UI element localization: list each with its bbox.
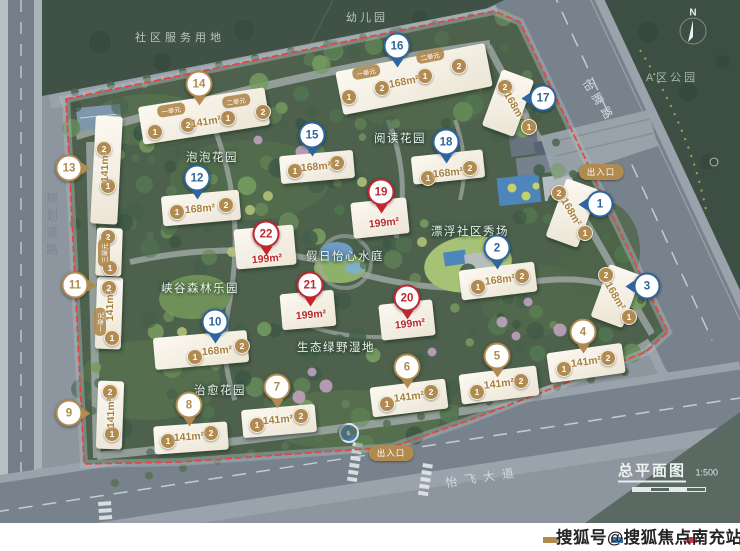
unit-number-badge: 1: [470, 279, 486, 295]
building-marker-6[interactable]: 6: [394, 354, 421, 381]
label-kindergarten: 幼儿园: [346, 9, 388, 25]
garden-label: 泡泡花园: [186, 149, 238, 165]
unit-number-badge: 2: [203, 425, 219, 441]
building-number: 13: [63, 162, 76, 174]
building-marker-15[interactable]: 15: [299, 122, 326, 149]
marker-pin-tail: [577, 345, 589, 354]
building-number: 17: [537, 92, 550, 104]
garden-label: 假日怡心水庭: [306, 248, 384, 264]
building-number: 5: [494, 350, 500, 362]
garden-label: 生态绿野湿地: [297, 339, 375, 355]
unit-number-badge: 1: [379, 396, 395, 412]
building-marker-22[interactable]: 22: [253, 221, 280, 248]
building-marker-2[interactable]: 2: [484, 235, 511, 262]
marker-pin-tail: [183, 418, 195, 427]
building-number: 11: [69, 279, 81, 291]
building-number: 8: [186, 399, 192, 411]
marker-pin-tail: [401, 311, 413, 320]
entrance-badge: 出入口: [369, 445, 414, 461]
building-marker-21[interactable]: 21: [297, 272, 324, 299]
unit-number-badge: 2: [451, 58, 467, 74]
unit-number-badge: 1: [169, 204, 185, 220]
building-marker-16[interactable]: 16: [384, 33, 411, 60]
building-marker-14[interactable]: 14: [186, 71, 213, 98]
building-marker-5[interactable]: 5: [484, 343, 511, 370]
building-number: 7: [274, 381, 280, 393]
building-number: 22: [260, 228, 273, 240]
marker-pin-tail: [271, 400, 283, 409]
building-number: 4: [580, 326, 586, 338]
building-number: 10: [209, 316, 222, 328]
building-marker-8[interactable]: 8: [176, 392, 203, 419]
marker-pin-tail: [191, 191, 203, 200]
building-number: 6: [404, 361, 410, 373]
marker-pin-tail: [491, 261, 503, 270]
building-marker-4[interactable]: 4: [570, 319, 597, 346]
marker-pin-tail: [260, 247, 272, 256]
building-area-label: 141m²: [99, 152, 111, 182]
building-marker-19[interactable]: 19: [368, 179, 395, 206]
building-number: 12: [191, 172, 204, 184]
unit-number-badge: 1: [187, 349, 203, 365]
marker-pin-tail: [209, 335, 221, 344]
building-number: 20: [401, 292, 414, 304]
unit-number-badge: 2: [218, 197, 234, 213]
watermark: 搜狐号@搜狐焦点南充站: [556, 524, 740, 548]
building-marker-13[interactable]: 13: [56, 155, 83, 182]
marker-pin-tail: [522, 92, 531, 104]
marker-pin-tail: [304, 298, 316, 307]
building-number: 21: [304, 279, 317, 291]
unit-number-badge: 2: [513, 373, 529, 389]
building-area-label: 141m²: [104, 291, 116, 321]
unit-number-badge: 1: [104, 426, 120, 442]
building-marker-9[interactable]: 9: [56, 400, 83, 427]
label-road-east: 怡腾路: [579, 76, 619, 126]
marker-pin-tail: [579, 198, 588, 210]
building-number: 9: [66, 407, 72, 419]
garden-label: 峡谷森林乐园: [161, 280, 239, 296]
unit-number-badge: 2: [514, 268, 530, 284]
building-number: 3: [644, 280, 650, 292]
scale-bar: [632, 487, 706, 492]
building-number: 14: [193, 78, 206, 90]
marker-pin-tail: [626, 280, 635, 292]
unit-number-badge: 1: [469, 384, 485, 400]
unit-number-badge: 1: [341, 89, 357, 105]
building-marker-3[interactable]: 3: [634, 273, 661, 300]
building-area-label: 141m²: [173, 430, 204, 444]
unit-number-badge: 1: [104, 330, 120, 346]
marker-pin-tail: [440, 155, 452, 164]
marker-pin-tail: [375, 205, 387, 214]
building-marker-12[interactable]: 12: [184, 165, 211, 192]
building-number: 15: [306, 129, 319, 141]
marker-pin-tail: [193, 97, 205, 106]
garden-label: 阅读花园: [374, 130, 426, 146]
unit-number-badge: 1: [521, 119, 537, 135]
building-number: 16: [391, 40, 404, 52]
plan-scale: 1:500: [695, 468, 718, 478]
building-number: 19: [375, 186, 388, 198]
unit-number-badge: 2: [423, 384, 439, 400]
unit-number-badge: 1: [577, 225, 593, 241]
unit-number-badge: 2: [600, 350, 616, 366]
building-number: 18: [440, 136, 453, 148]
building-number: 2: [494, 242, 500, 254]
marker-pin-tail: [82, 407, 91, 419]
plan-title: 总平面图: [618, 463, 686, 483]
label-road-west: 规划道路: [44, 192, 61, 260]
unit-number-badge: 2: [255, 104, 271, 120]
unit-number-badge: 2: [234, 338, 250, 354]
marker-pin-tail: [391, 59, 403, 68]
unit-number-badge: 1: [147, 124, 163, 140]
marker-pin-tail: [306, 148, 318, 157]
label-community-service-land: 社区服务用地: [135, 29, 225, 45]
unit-number-badge: 2: [462, 160, 478, 176]
marker-pin-tail: [82, 162, 91, 174]
site-plan-page: 社区服务用地 幼儿园 A区公园 怡腾路 规划道路 怡飞大道 总平面图 1:500…: [0, 0, 740, 551]
plan-title-block: 总平面图 1:500: [618, 460, 718, 481]
unit-number-badge: 2: [374, 80, 390, 96]
marker-pin-tail: [401, 380, 413, 389]
unit-name-pill: 三单元: [98, 239, 110, 267]
marker-pin-tail: [88, 279, 97, 291]
map-overlay: 社区服务用地 幼儿园 A区公园 怡腾路 规划道路 怡飞大道 总平面图 1:500…: [0, 0, 740, 523]
unit-number-badge: 1: [621, 309, 637, 325]
building-marker-7[interactable]: 7: [264, 374, 291, 401]
building-marker-20[interactable]: 20: [394, 285, 421, 312]
label-district-park: A区公园: [646, 69, 698, 85]
building-marker-1[interactable]: 1: [587, 191, 614, 218]
garden-label: 治愈花园: [194, 382, 246, 398]
building-number: 1: [597, 198, 603, 210]
building-marker-17[interactable]: 17: [530, 85, 557, 112]
entrance-badge: 出入口: [579, 164, 624, 180]
building-area-label: 141m²: [105, 398, 117, 428]
building-marker-11[interactable]: 11: [62, 272, 89, 299]
marker-pin-tail: [491, 369, 503, 378]
label-road-south: 怡飞大道: [444, 463, 522, 491]
building-marker-18[interactable]: 18: [433, 129, 460, 156]
unit-number-badge: 1: [220, 110, 236, 126]
compass-north-label: N: [689, 8, 696, 19]
building-marker-10[interactable]: 10: [202, 309, 229, 336]
unit-number-badge: 1: [556, 361, 572, 377]
unit-number-badge: 2: [293, 408, 309, 424]
